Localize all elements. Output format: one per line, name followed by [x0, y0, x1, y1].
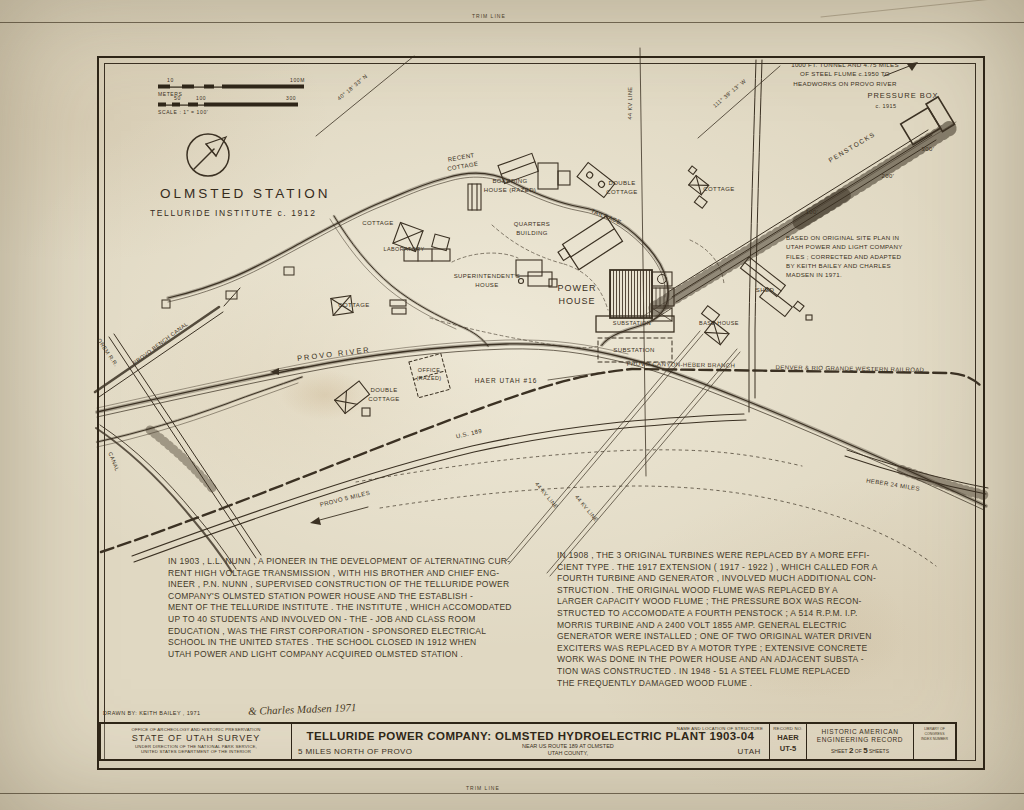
map-label: COTTAGE [338, 301, 369, 310]
location-state: UTAH [737, 747, 761, 756]
title-block-org-cell: HISTORIC AMERICAN ENGINEERING RECORD SHE… [807, 724, 914, 759]
map-label: LABORATORY [384, 246, 425, 254]
title-block-name-cell: NAME AND LOCATION OF STRUCTURE TELLURIDE… [292, 724, 770, 759]
map-label: HAER UTAH #16 [475, 376, 538, 385]
location-provo: 5 MILES NORTH OF PROVO [298, 747, 412, 756]
map-label: BOARDING HOUSE (RAZED) [484, 177, 537, 194]
scale-ratio-label: SCALE : 1" = 100' [158, 109, 208, 115]
scale-tick: 100M [290, 77, 305, 83]
map-label: POWER HOUSE [557, 282, 596, 308]
map-label: c. 1915 [876, 103, 897, 111]
sheet-total: 5 [863, 746, 867, 755]
map-label: 200' [882, 172, 895, 181]
sheet-suffix: SHEETS [869, 748, 889, 754]
agency-survey-label: STATE OF UTAH SURVEY [101, 733, 291, 743]
map-label: 100' [806, 208, 819, 217]
scale-tick: 50 [174, 95, 181, 101]
map-subtitle: TELLURIDE INSTITUTE c. 1912 [150, 208, 316, 218]
title-block-loc-cell: LIBRARY OF CONGRESS INDEX NUMBER [914, 724, 955, 759]
scale-tick: 300 [286, 95, 296, 101]
structure-title: TELLURIDE POWER COMPANY: OLMSTED HYDROEL… [292, 730, 769, 742]
library-of-congress-caption: LIBRARY OF CONGRESS INDEX NUMBER [914, 727, 955, 742]
title-block: OFFICE OF ARCHEOLOGY AND HISTORIC PRESER… [99, 722, 957, 761]
source-note: BASED ON ORIGINAL SITE PLAN IN UTAH POWE… [786, 233, 961, 279]
map-label: PRESSURE BOX [867, 91, 938, 102]
tunnel-note: 1000 FT. TUNNEL AND 4.75 MILES OF STEEL … [760, 60, 930, 88]
map-label: QUARTERS BUILDING [514, 220, 550, 237]
sheet-number: 2 [849, 746, 853, 755]
history-paragraph-left: IN 1903 , L.L. NUNN , A PIONEER IN THE D… [168, 556, 512, 660]
scale-tick: 100 [196, 95, 206, 101]
title-block-record-cell: RECORD NO. HAER UT-5 [770, 724, 807, 759]
agency-office-label: OFFICE OF ARCHEOLOGY AND HISTORIC PRESER… [101, 727, 291, 732]
drawn-by-label: DRAWN BY: KEITH BAILEY , 1971 [103, 710, 201, 716]
name-caption: NAME AND LOCATION OF STRUCTURE [677, 726, 763, 731]
org-line-1: HISTORIC AMERICAN [807, 728, 913, 735]
map-label: DOUBLE COTTAGE [368, 386, 399, 403]
org-line-2: ENGINEERING RECORD [807, 736, 913, 743]
map-title: OLMSTED STATION [160, 186, 331, 201]
map-label: 300' [922, 145, 935, 154]
map-label: 44 KV LINE [627, 87, 635, 120]
map-label: SUBSTATION [613, 346, 654, 355]
agency-direction-label: UNDER DIRECTION OF THE NATIONAL PARK SER… [101, 744, 291, 755]
scale-tick: 10 [167, 77, 174, 83]
sheet-number-line: SHEET 2 OF 5 SHEETS [807, 746, 913, 755]
map-label: BASE HOUSE [699, 320, 739, 328]
sheet-prefix: SHEET [831, 748, 848, 754]
history-paragraph-right: IN 1908 , THE 3 ORIGINAL TURBINES WERE R… [557, 550, 878, 689]
location-route: NEAR US ROUTE 189 AT OLMSTED UTAH COUNTY… [522, 743, 614, 757]
map-label: SHED [756, 286, 774, 295]
map-label: DOUBLE COTTAGE [606, 179, 637, 196]
map-label: SUBSTATION [613, 320, 651, 328]
map-label: OFFICE (RAZED) [416, 367, 441, 383]
record-ut5: UT-5 [770, 744, 806, 753]
sheet-of: OF [855, 748, 862, 754]
drawing-sheet: TRIM LINE TRIM LINE [0, 0, 1024, 810]
record-no-caption: RECORD NO. [770, 726, 806, 731]
map-label: COTTAGE [362, 219, 393, 228]
record-haer: HAER [770, 733, 806, 742]
title-block-agency-cell: OFFICE OF ARCHEOLOGY AND HISTORIC PRESER… [101, 724, 292, 759]
map-label: SUPERINTENDENT'S HOUSE [454, 272, 521, 289]
map-label: COTTAGE [703, 185, 734, 194]
